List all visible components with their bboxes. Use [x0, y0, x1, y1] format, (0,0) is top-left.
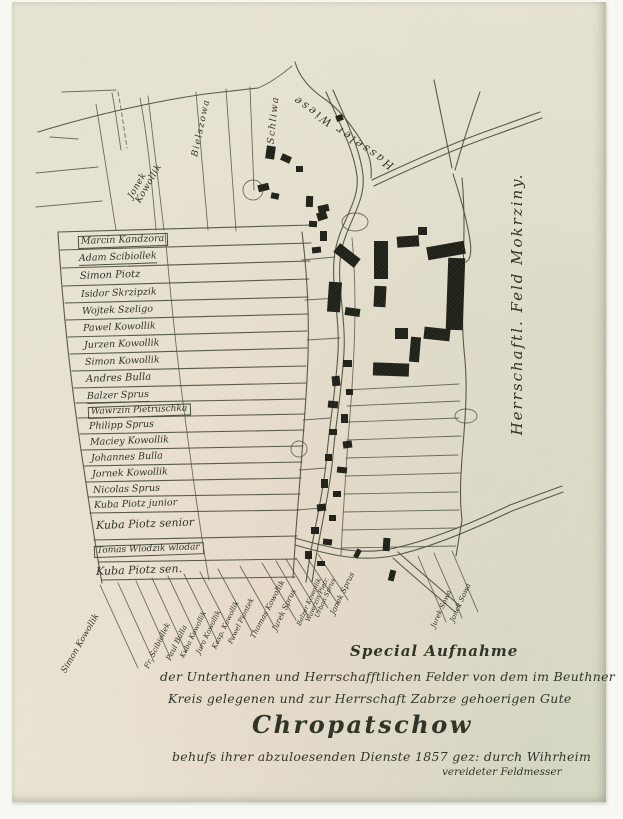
map-drawing [12, 2, 606, 802]
building [346, 389, 353, 395]
building [312, 247, 322, 254]
top-left-fields [36, 66, 292, 231]
building [397, 235, 420, 248]
building [446, 258, 466, 331]
building [374, 241, 388, 279]
bottom-strip-fields [100, 551, 478, 668]
building [383, 538, 391, 551]
roads-south [295, 486, 563, 612]
building [306, 196, 313, 207]
building [316, 211, 328, 222]
building [257, 183, 269, 192]
building [321, 479, 328, 488]
building [325, 454, 332, 461]
building [328, 400, 339, 408]
map-paper: Special Aufnahme der Unterthanen und Her… [12, 2, 606, 802]
left-strip-fields [58, 225, 340, 583]
building [353, 548, 362, 558]
building [331, 376, 340, 387]
building [373, 286, 386, 308]
building [309, 221, 317, 228]
building [333, 491, 341, 497]
building [280, 153, 292, 163]
building [317, 504, 327, 512]
building [265, 145, 276, 159]
stream [295, 62, 371, 178]
building [317, 561, 325, 566]
building [343, 360, 352, 367]
building [395, 328, 408, 339]
building [329, 515, 336, 521]
building [320, 231, 327, 241]
building [409, 337, 421, 363]
building [373, 362, 409, 376]
building [345, 307, 361, 317]
building [270, 192, 279, 200]
building [327, 282, 342, 313]
building [329, 429, 337, 435]
building [418, 227, 427, 235]
building [296, 166, 303, 172]
building [333, 243, 360, 268]
building [343, 440, 353, 448]
building [426, 241, 466, 260]
building [311, 527, 319, 534]
roads-northeast [372, 80, 542, 262]
ponds [243, 180, 477, 457]
building [337, 466, 348, 473]
building [341, 414, 348, 423]
building [323, 539, 333, 546]
scanned-map-page: Special Aufnahme der Unterthanen und Her… [0, 0, 623, 819]
building [388, 569, 396, 581]
building [305, 551, 312, 559]
